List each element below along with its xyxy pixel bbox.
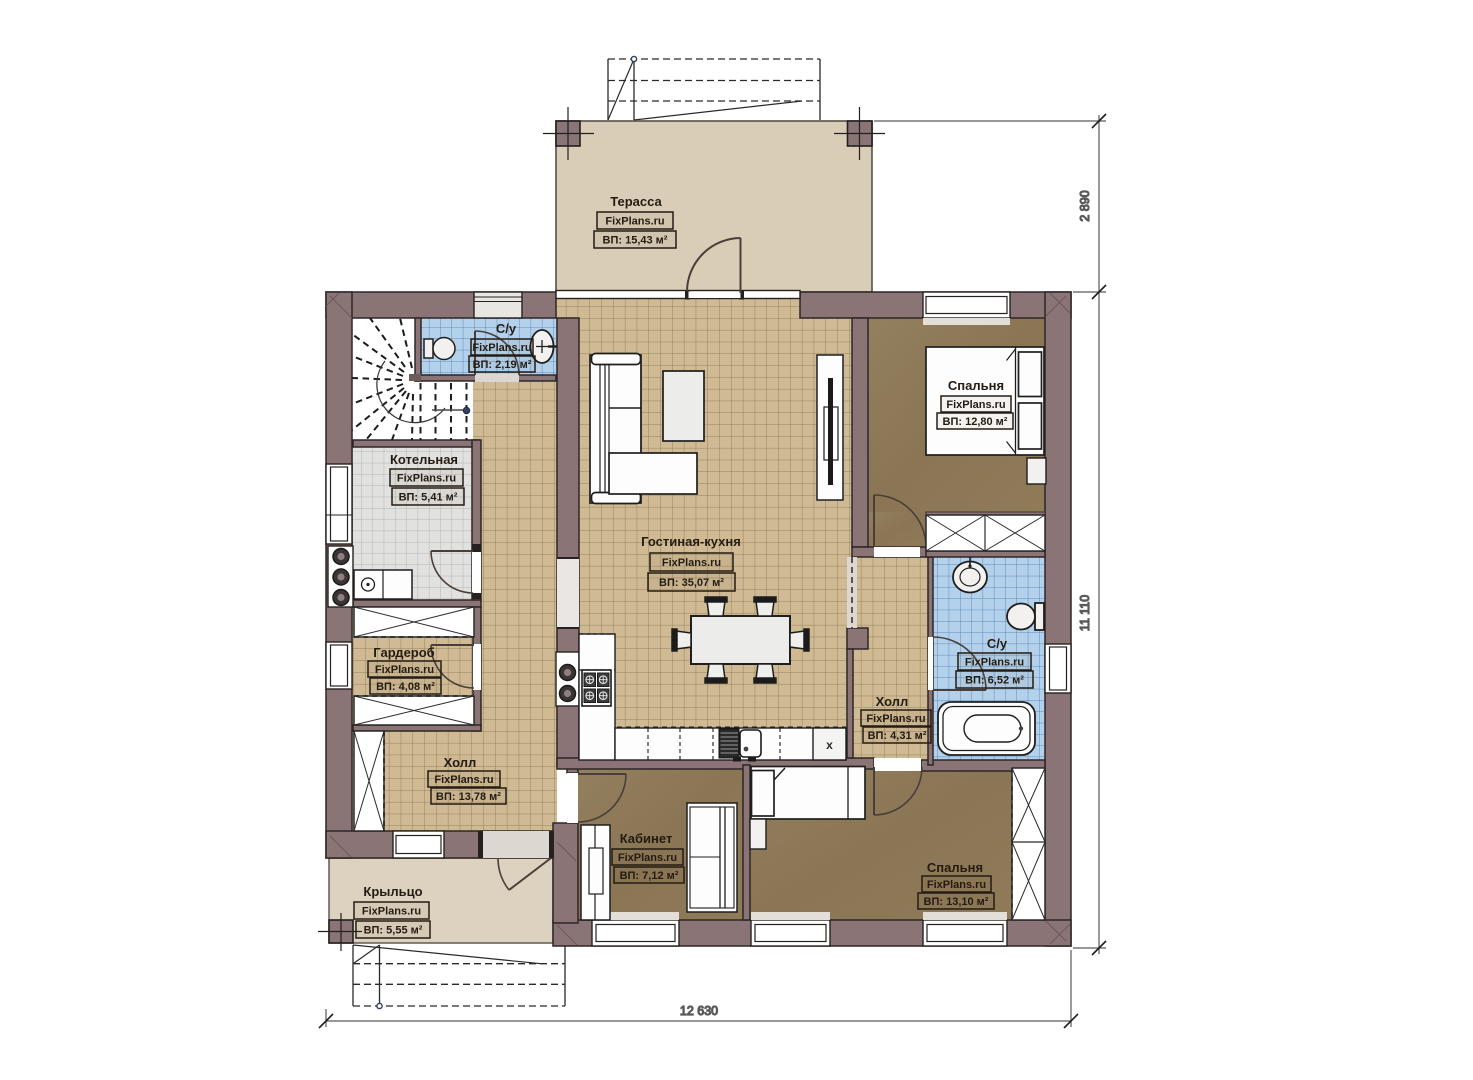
svg-text:FixPlans.ru: FixPlans.ru	[927, 879, 986, 891]
svg-text:11 110: 11 110	[1078, 595, 1092, 631]
svg-text:ВП: 4,31 м²: ВП: 4,31 м²	[868, 730, 927, 742]
svg-text:FixPlans.ru: FixPlans.ru	[946, 399, 1005, 411]
svg-text:Гардероб: Гардероб	[373, 645, 434, 660]
svg-text:2 890: 2 890	[1078, 190, 1092, 221]
svg-text:ВП: 5,55 м²: ВП: 5,55 м²	[364, 925, 423, 937]
svg-text:x: x	[826, 738, 833, 752]
svg-text:ВП: 13,10 м²: ВП: 13,10 м²	[924, 896, 989, 908]
svg-text:Гостиная-кухня: Гостиная-кухня	[641, 534, 741, 549]
svg-text:ВП: 4,08 м²: ВП: 4,08 м²	[376, 681, 435, 693]
svg-text:С/у: С/у	[987, 636, 1008, 651]
svg-text:FixPlans.ru: FixPlans.ru	[397, 473, 456, 485]
svg-text:Холл: Холл	[876, 694, 909, 709]
svg-text:Холл: Холл	[444, 755, 477, 770]
svg-text:ВП: 13,78 м²: ВП: 13,78 м²	[436, 791, 501, 803]
svg-text:FixPlans.ru: FixPlans.ru	[472, 342, 531, 354]
svg-text:ВП: 7,12 м²: ВП: 7,12 м²	[620, 870, 679, 882]
svg-text:ВП: 2,19 м²: ВП: 2,19 м²	[473, 359, 532, 371]
svg-text:FixPlans.ru: FixPlans.ru	[362, 906, 421, 918]
svg-text:FixPlans.ru: FixPlans.ru	[866, 713, 925, 725]
svg-text:ВП: 5,41 м²: ВП: 5,41 м²	[399, 492, 458, 504]
svg-text:ВП: 12,80 м²: ВП: 12,80 м²	[943, 416, 1008, 428]
svg-text:ВП: 35,07 м²: ВП: 35,07 м²	[659, 577, 724, 589]
svg-text:Терасса: Терасса	[610, 194, 662, 209]
svg-text:Кабинет: Кабинет	[620, 831, 673, 846]
svg-text:FixPlans.ru: FixPlans.ru	[965, 657, 1024, 669]
svg-text:ВП: 15,43 м²: ВП: 15,43 м²	[603, 235, 668, 247]
svg-text:FixPlans.ru: FixPlans.ru	[662, 557, 721, 569]
svg-text:12 630: 12 630	[680, 1004, 718, 1018]
svg-text:FixPlans.ru: FixPlans.ru	[618, 852, 677, 864]
svg-text:FixPlans.ru: FixPlans.ru	[375, 664, 434, 676]
svg-text:Спальня: Спальня	[948, 378, 1004, 393]
svg-text:Котельная: Котельная	[390, 452, 458, 467]
svg-text:Крыльцо: Крыльцо	[363, 884, 422, 899]
svg-text:ВП: 6,52 м²: ВП: 6,52 м²	[965, 675, 1024, 687]
svg-text:Спальня: Спальня	[927, 860, 983, 875]
svg-text:FixPlans.ru: FixPlans.ru	[605, 216, 664, 228]
svg-text:FixPlans.ru: FixPlans.ru	[434, 774, 493, 786]
svg-text:С/у: С/у	[496, 321, 517, 336]
